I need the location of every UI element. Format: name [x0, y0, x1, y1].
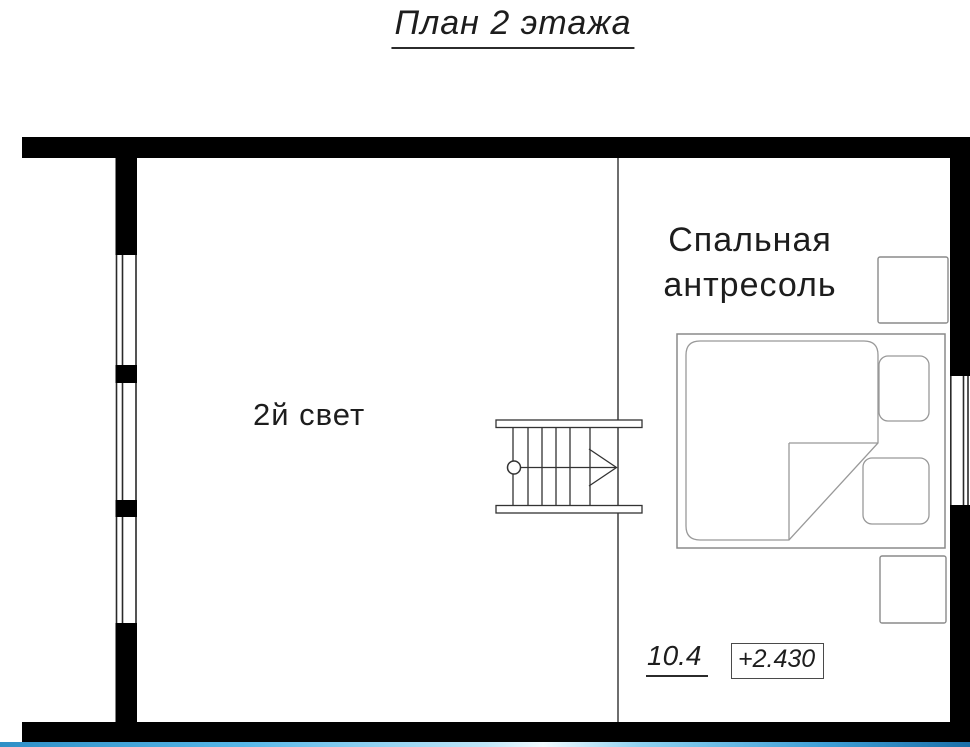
- pillow-top: [879, 356, 929, 421]
- room-area-value: 10.4: [646, 640, 708, 677]
- stair-start-marker: [508, 461, 521, 474]
- room-label-bedroom: Спальная антресоль: [655, 218, 845, 308]
- window-left-1: [117, 255, 137, 365]
- staircase: [496, 420, 642, 513]
- wall-left-pier-3: [116, 500, 138, 517]
- wall-top: [22, 137, 970, 158]
- wall-left-pier-1: [116, 157, 138, 255]
- bottom-accent-bar: [0, 742, 970, 747]
- bedroom-furniture: [677, 257, 948, 623]
- wall-left-pier-4: [116, 623, 138, 722]
- wall-bottom: [22, 722, 970, 742]
- stair-stringer-top: [496, 420, 642, 428]
- window-left-3: [117, 517, 137, 623]
- wall-right-pier-2: [950, 505, 970, 722]
- floor-plan-drawing: [0, 0, 970, 747]
- nightstand-bottom: [880, 556, 946, 623]
- stair-stringer-bottom: [496, 506, 642, 514]
- pillow-bottom: [863, 458, 929, 524]
- wall-right-pier-1: [950, 157, 970, 376]
- elevation-mark: +2.430: [731, 643, 824, 679]
- window-left-2: [117, 383, 137, 500]
- stair-treads: [513, 428, 590, 506]
- wall-left-pier-2: [116, 365, 138, 383]
- floor-plan-page: План 2 этажа: [0, 0, 970, 747]
- left-wall-windows: [117, 255, 137, 623]
- window-right: [951, 376, 968, 505]
- nightstand-top: [878, 257, 948, 323]
- room-label-double-height: 2й свет: [253, 397, 365, 433]
